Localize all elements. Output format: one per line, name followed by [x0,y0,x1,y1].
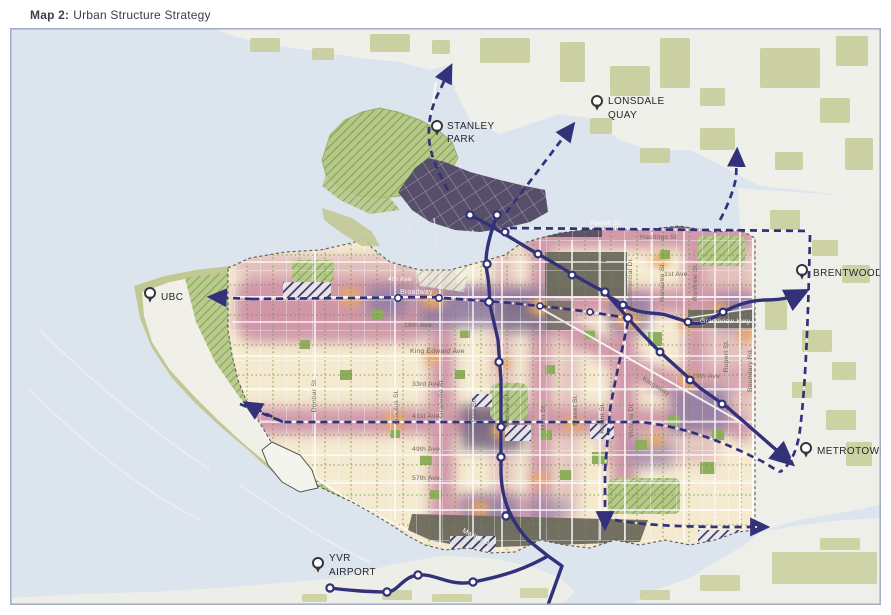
street-label-cambie: Cambie St. [504,392,511,428]
street-label-fraser: Fraser St. [572,394,579,426]
street-label-nanaimo: Nanaimo St. [659,262,666,302]
map-canvas: Powell St Hastings St 1st Ave Broadway 4… [10,28,881,605]
street-label-boundary: Boundary Rd. [747,348,754,392]
street-label-sixteenth-ave: 16th Ave [404,322,432,329]
street-label-oak: Oak St. [471,398,478,422]
map-caption-text: Urban Structure Strategy [73,8,211,22]
brentwood-label: BRENTWOOD [813,268,881,279]
street-label-clark: Clark Dr [601,254,608,281]
street-label-king-edward: King Edward Ave [410,348,465,355]
stanley-park-label-2: PARK [447,134,475,145]
lonsdale-quay-label-2: QUAY [608,110,637,121]
map-caption-number: Map 2: [30,8,69,22]
street-label-knight: Knight St. [599,402,606,433]
street-label-dunbar: Dunbar St. [311,378,318,413]
stanley-park-label-1: STANLEY [447,121,495,132]
yvr-airport-label-1: YVR [329,553,351,564]
map-caption: Map 2:Urban Structure Strategy [30,8,211,22]
street-label-victoria: Victoria Dr. [628,402,635,438]
street-label-forty-ninth: 49th Ave. [412,446,442,453]
ubc-label: UBC [161,292,183,303]
urban-structure-map: Powell St Hastings St 1st Ave Broadway 4… [10,28,881,605]
street-label-broadway: Broadway [400,289,433,296]
street-label-granville: Granville St. [438,378,445,418]
street-label-fourth-ave: 4th Ave [388,276,412,283]
street-label-arbutus: Arbutus St. [393,389,400,425]
street-label-rupert: Rupert St. [723,340,730,373]
metrotown-label: METROTOWN [817,446,881,457]
street-label-main: Main St. [540,404,547,431]
street-label-hastings: Hastings St [640,234,677,241]
street-label-twenty-ninth: 29th Ave. [692,373,722,380]
street-label-fifty-seventh: 57th Ave. [412,475,442,482]
street-label-renfrew: Renfrew St. [692,263,699,301]
street-label-first-ave: 1st Ave [664,271,688,278]
street-label-powell: Powell St [590,220,620,227]
street-label-grandview: Grandview Hwy [700,318,751,325]
lonsdale-quay-label-1: LONSDALE [608,96,665,107]
street-label-commercial: Commercial Dr. [627,257,634,307]
yvr-airport-label-2: AIRPORT [329,567,376,578]
